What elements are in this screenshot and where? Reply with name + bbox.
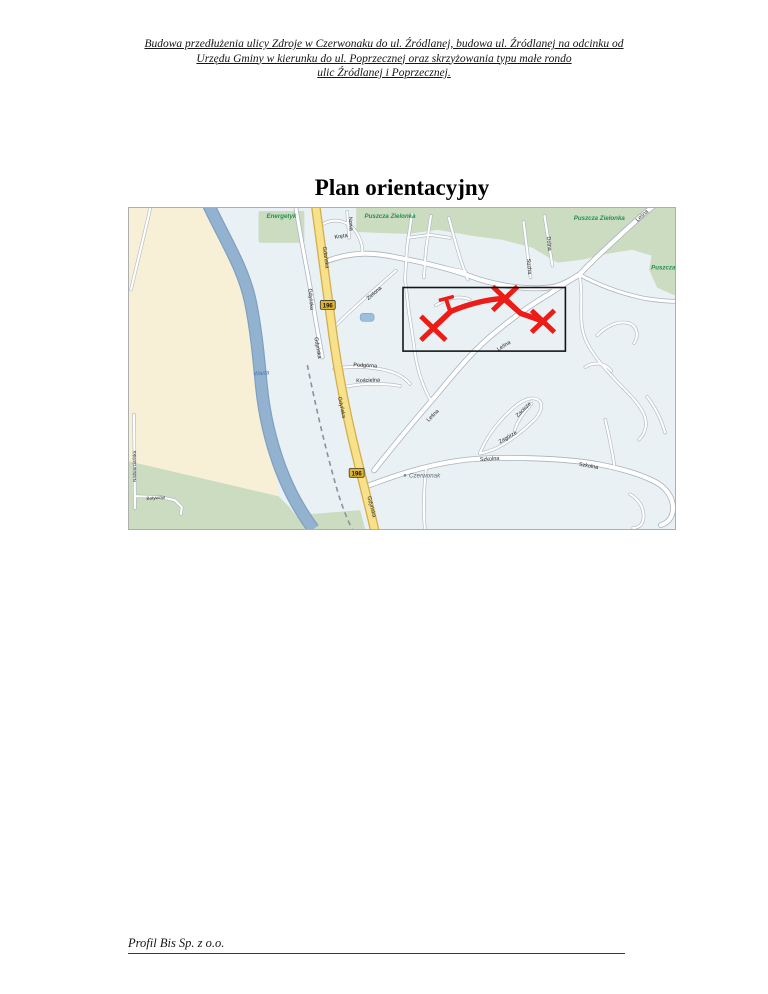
svg-text:196: 196 (352, 471, 363, 477)
document-header: Budowa przedłużenia ulicy Zdroje w Czerw… (64, 37, 704, 81)
place-label-czerwonak: Czerwonak (409, 472, 441, 479)
svg-text:196: 196 (323, 303, 334, 309)
orientation-map-figure: Energetyk Puszcza Zielonka Puszcza Zielo… (128, 207, 676, 530)
area-label-puszcza-zielonka-1: Puszcza Zielonka (365, 213, 417, 220)
route-badge-196-upper: 196 (320, 300, 335, 309)
area-label-energetyk: Energetyk (267, 213, 297, 220)
header-line-1: Budowa przedłużenia ulicy Zdroje w Czerw… (64, 37, 704, 52)
header-line-2: Urzędu Gminy w kierunku do ul. Poprzeczn… (64, 52, 704, 67)
street-label-nadwarcianska: Nadwarciańska (132, 450, 137, 482)
orientation-map: Energetyk Puszcza Zielonka Puszcza Zielo… (129, 208, 675, 529)
page-title: Plan orientacyjny (128, 175, 676, 201)
document-footer: Profil Bis Sp. z o.o. (128, 936, 625, 954)
street-label-podgorna: Podgórna (353, 362, 378, 369)
area-label-puszcza-cut: Puszcza (651, 265, 675, 272)
street-label-koscielna: Kościelna (356, 377, 381, 384)
place-marker-czerwonak (404, 474, 407, 477)
footer-company: Profil Bis Sp. z o.o. (128, 936, 224, 950)
route-badge-196-lower: 196 (349, 468, 364, 477)
area-label-puszcza-zielonka-2: Puszcza Zielonka (574, 215, 626, 222)
header-line-3: ulic Źródlanej i Poprzecznej. (64, 66, 704, 81)
pond (360, 313, 374, 321)
document-page: Budowa przedłużenia ulicy Zdroje w Czerw… (0, 0, 768, 994)
